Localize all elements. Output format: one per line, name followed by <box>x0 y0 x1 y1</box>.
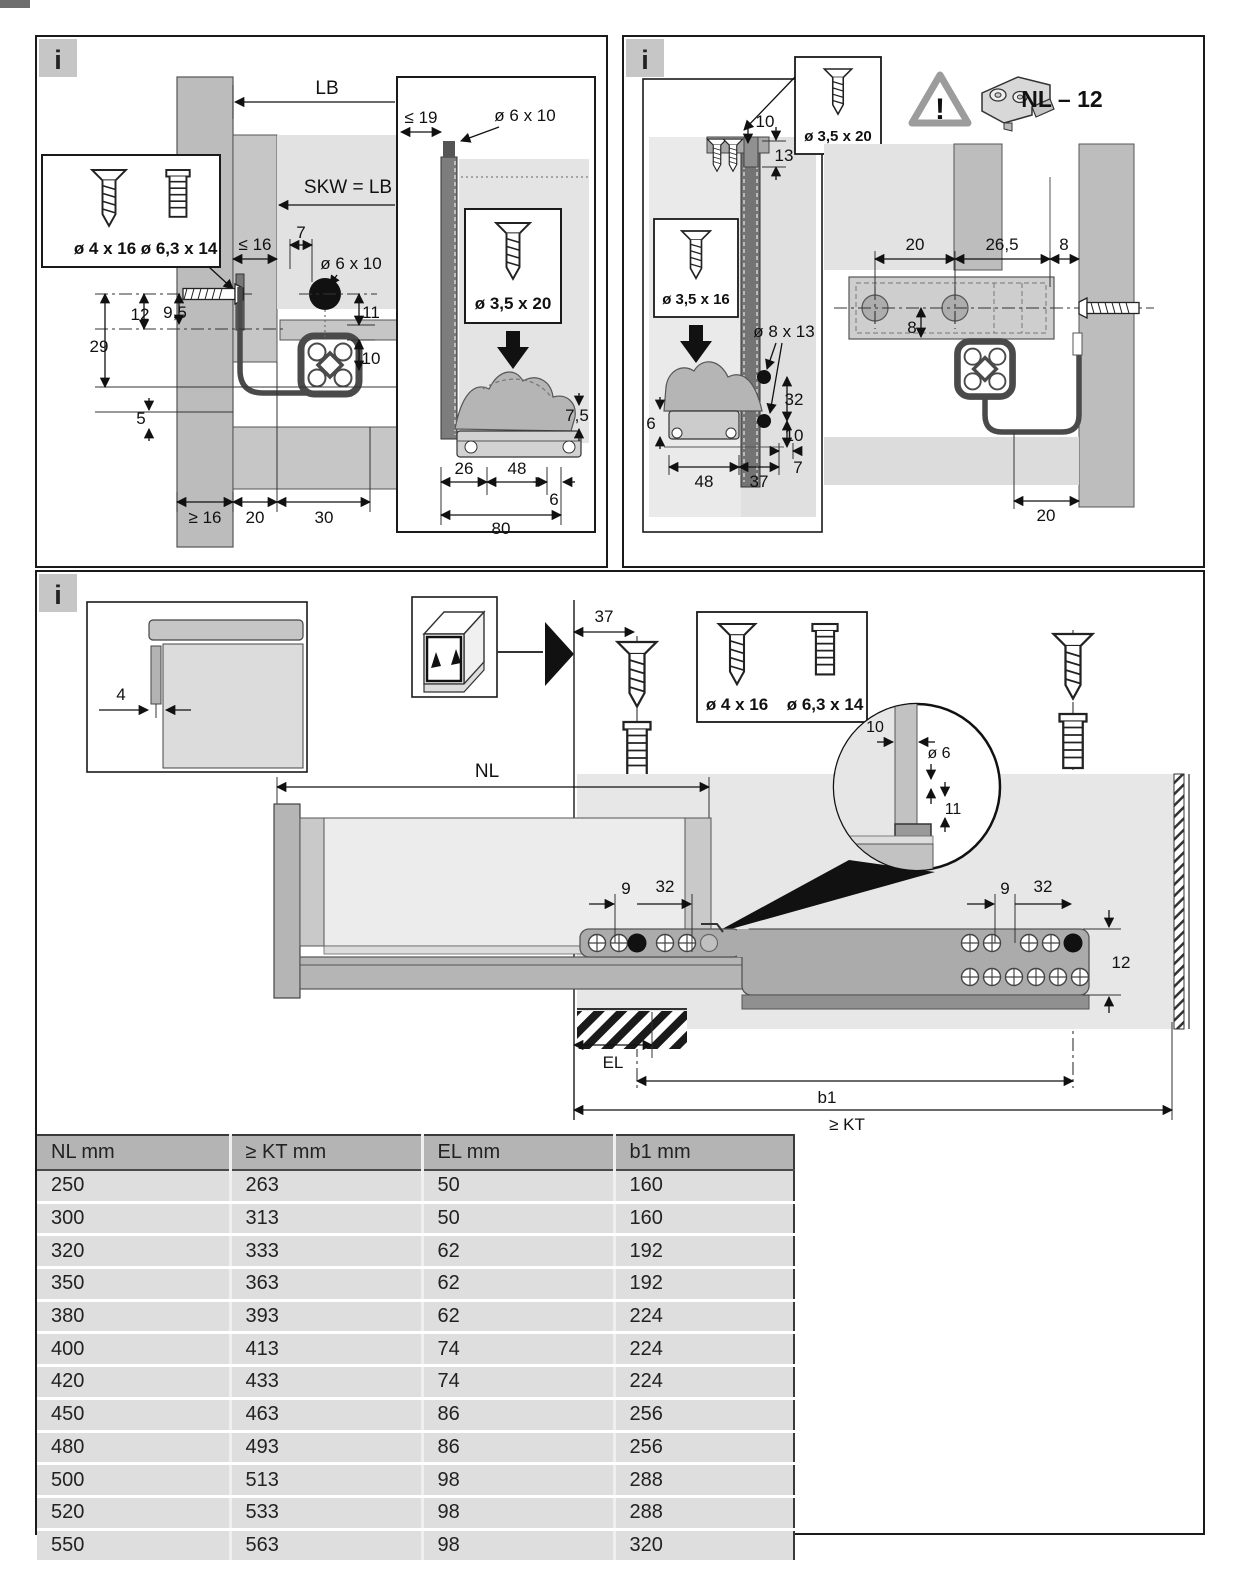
fixing-hole <box>1064 934 1083 953</box>
table-cell: 50 <box>422 1170 614 1202</box>
front-detail-subpanel: ≤ 19 ø 6 x 10 ø 3,5 x 20 7,5 26 48 6 80 <box>397 77 595 538</box>
table-cell: 74 <box>422 1366 614 1399</box>
front-gap-detail-box: 4 <box>87 602 307 772</box>
part-number-label: NL – 12 <box>1021 86 1102 112</box>
table-cell: 98 <box>422 1529 614 1560</box>
top-view-section: 20 26,5 8 8 20 <box>824 144 1154 525</box>
screw-top-label: ø 3,5 x 20 <box>804 128 872 145</box>
screw2-label: ø 6,3 x 14 <box>141 239 218 258</box>
table-row: 35036362192 <box>37 1268 794 1301</box>
dim-32-right: 32 <box>1034 877 1053 896</box>
mag-dim-dia6: ø 6 <box>927 745 950 762</box>
mag-dim-10: 10 <box>866 719 884 736</box>
table-row: 42043374224 <box>37 1366 794 1399</box>
table-header-cell: NL mm <box>37 1135 230 1170</box>
spec-table-body: 2502635016030031350160320333621923503636… <box>37 1170 794 1560</box>
screw2-label: ø 6,3 x 14 <box>787 695 864 714</box>
drawer-side-view <box>274 804 745 998</box>
table-cell: 86 <box>422 1398 614 1431</box>
screw-icon <box>1054 634 1093 699</box>
dim-hole: ø 6 x 10 <box>320 254 381 273</box>
pointer-triangle <box>545 622 574 686</box>
back-mounting-drawing: i 10 13 ø 3,5 x 16 ø 8 x 13 32 10 <box>624 37 1203 566</box>
dim-hole: ø 8 x 13 <box>753 322 814 341</box>
dim-11: 11 <box>362 303 380 322</box>
table-cell: 300 <box>37 1202 230 1235</box>
table-header-cell: b1 mm <box>614 1135 794 1170</box>
rail-cross-section <box>957 341 1012 396</box>
plug-hole <box>757 370 771 384</box>
dim-8: 8 <box>1059 235 1068 254</box>
table-cell: 393 <box>230 1300 422 1333</box>
dim-8b: 8 <box>907 318 916 337</box>
table-cell: 363 <box>230 1268 422 1301</box>
mag-dim-11: 11 <box>945 801 962 818</box>
dim-32: 32 <box>785 390 804 409</box>
table-cell: 320 <box>37 1235 230 1268</box>
dim-13: 13 <box>775 146 794 165</box>
dim-5: 5 <box>136 409 145 428</box>
table-cell: 263 <box>230 1170 422 1202</box>
dim-el: EL <box>603 1053 624 1072</box>
dim-b1: b1 <box>818 1088 837 1107</box>
table-cell: 98 <box>422 1464 614 1497</box>
table-header-row: NL mm≥ KT mmEL mmb1 mm <box>37 1135 794 1170</box>
dim-9-right: 9 <box>1000 879 1009 898</box>
table-cell: 563 <box>230 1529 422 1560</box>
dim-lb: LB <box>315 78 338 99</box>
table-row: 55056398320 <box>37 1529 794 1560</box>
screw-spec-box: ø 4 x 16 ø 6,3 x 14 <box>42 155 220 267</box>
info-label: i <box>641 45 649 75</box>
dim-12: 12 <box>1112 953 1131 972</box>
table-cell: 333 <box>230 1235 422 1268</box>
table-row: 52053398288 <box>37 1496 794 1529</box>
dim-4: 4 <box>116 685 125 704</box>
table-cell: 74 <box>422 1333 614 1366</box>
cabinet-icon <box>424 612 484 692</box>
dim-80: 80 <box>492 519 511 538</box>
dim-26: 26 <box>455 459 474 478</box>
screw-mid-label: ø 3,5 x 16 <box>662 291 730 308</box>
euro-screw-icon <box>812 624 837 674</box>
table-cell: 256 <box>614 1431 794 1464</box>
dim-7: 7 <box>296 223 305 242</box>
drawer-side-section <box>277 135 397 309</box>
table-cell: 160 <box>614 1170 794 1202</box>
floor-hatch <box>577 1011 687 1049</box>
dim-20: 20 <box>906 235 925 254</box>
dim-9-5: 9,5 <box>163 303 187 322</box>
table-cell: 62 <box>422 1300 614 1333</box>
info-label: i <box>54 45 62 75</box>
table-cell: 98 <box>422 1496 614 1529</box>
dim-6: 6 <box>549 490 558 509</box>
table-header-cell: ≥ KT mm <box>230 1135 422 1170</box>
detail-screw-label: ø 3,5 x 20 <box>475 294 552 313</box>
table-cell: 288 <box>614 1496 794 1529</box>
table-cell: 62 <box>422 1268 614 1301</box>
table-row: 32033362192 <box>37 1235 794 1268</box>
dim-12: 12 <box>131 305 150 324</box>
warning-exclamation: ! <box>935 93 945 126</box>
table-cell: 550 <box>37 1529 230 1560</box>
cabinet-icon-box <box>412 597 497 697</box>
page-corner-mark <box>0 0 30 8</box>
dim-le16: ≤ 16 <box>239 235 272 254</box>
fixing-hole <box>628 934 647 953</box>
table-row: 30031350160 <box>37 1202 794 1235</box>
drawer-front <box>274 804 300 998</box>
dimension-table: NL mm≥ KT mmEL mmb1 mm 25026350160300313… <box>37 1134 794 1537</box>
panel-length-planning: i 4 37 ø 4 x <box>35 570 1205 1535</box>
dim-kt: ≥ KT <box>829 1115 865 1134</box>
table-cell: 50 <box>422 1202 614 1235</box>
dim-le19: ≤ 19 <box>405 108 438 127</box>
table-cell: 192 <box>614 1268 794 1301</box>
table-cell: 250 <box>37 1170 230 1202</box>
dim-hole2: ø 6 x 10 <box>494 106 555 125</box>
table-row: 38039362224 <box>37 1300 794 1333</box>
dim-48: 48 <box>695 472 714 491</box>
euro-screw-icon <box>624 722 651 776</box>
table-cell: 256 <box>614 1398 794 1431</box>
table-cell: 420 <box>37 1366 230 1399</box>
table-cell: 433 <box>230 1366 422 1399</box>
dim-10: 10 <box>362 349 381 368</box>
table-cell: 160 <box>614 1202 794 1235</box>
table-row: 25026350160 <box>37 1170 794 1202</box>
screw-icon <box>618 642 657 707</box>
dim-48: 48 <box>508 459 527 478</box>
table-cell: 380 <box>37 1300 230 1333</box>
back-wall <box>1174 774 1184 1029</box>
table-cell: 320 <box>614 1529 794 1560</box>
dim-30: 30 <box>315 508 334 527</box>
dim-26-5: 26,5 <box>985 235 1018 254</box>
dim-10b: 10 <box>785 426 804 445</box>
table-row: 48049386256 <box>37 1431 794 1464</box>
table-row: 50051398288 <box>37 1464 794 1497</box>
cabinet-bottom-section <box>233 427 397 489</box>
hole-plug <box>443 141 455 157</box>
dim-ge16: ≥ 16 <box>189 508 222 527</box>
panel-back-mounting: i 10 13 ø 3,5 x 16 ø 8 x 13 32 10 <box>622 35 1205 568</box>
side-mounting-drawing: i LB SKW = LB - 40 ø 4 x 16 ø 6,3 x 14 ø… <box>37 37 606 566</box>
table-cell: 480 <box>37 1431 230 1464</box>
table-cell: 224 <box>614 1300 794 1333</box>
table-header-cell: EL mm <box>422 1135 614 1170</box>
dim-7-5: 7,5 <box>565 406 589 425</box>
table-cell: 493 <box>230 1431 422 1464</box>
plug-hole <box>757 414 771 428</box>
euro-screw-icon <box>1060 714 1087 768</box>
dim-37: 37 <box>595 607 614 626</box>
table-cell: 413 <box>230 1333 422 1366</box>
dim-37: 37 <box>750 472 769 491</box>
dim-nl: NL <box>475 761 499 782</box>
table-cell: 500 <box>37 1464 230 1497</box>
table-cell: 520 <box>37 1496 230 1529</box>
table-cell: 533 <box>230 1496 422 1529</box>
info-label: i <box>54 580 62 610</box>
dim-9-left: 9 <box>621 879 630 898</box>
dim-20b: 20 <box>1037 506 1056 525</box>
dim-29: 29 <box>90 337 109 356</box>
table-cell: 224 <box>614 1333 794 1366</box>
dim-32-left: 32 <box>656 877 675 896</box>
table-cell: 463 <box>230 1398 422 1431</box>
drawer-bottom-rail <box>300 957 745 989</box>
cabinet-wall <box>1079 144 1134 507</box>
table-cell: 450 <box>37 1398 230 1431</box>
table-cell: 224 <box>614 1366 794 1399</box>
dim-20: 20 <box>246 508 265 527</box>
screw1-label: ø 4 x 16 <box>74 239 136 258</box>
screw1-label: ø 4 x 16 <box>706 695 768 714</box>
table-cell: 288 <box>614 1464 794 1497</box>
drawer-side <box>324 818 685 946</box>
dim-6: 6 <box>646 414 655 433</box>
table-cell: 400 <box>37 1333 230 1366</box>
table-cell: 192 <box>614 1235 794 1268</box>
table-cell: 350 <box>37 1268 230 1301</box>
table-row: 45046386256 <box>37 1398 794 1431</box>
dim-7: 7 <box>793 458 802 477</box>
table-cell: 313 <box>230 1202 422 1235</box>
screw-spec-box: ø 4 x 16 ø 6,3 x 14 <box>697 612 867 722</box>
rail-cross-section <box>301 336 359 394</box>
table-cell: 513 <box>230 1464 422 1497</box>
panel-side-mounting: i LB SKW = LB - 40 ø 4 x 16 ø 6,3 x 14 ø… <box>35 35 608 568</box>
table-cell: 62 <box>422 1235 614 1268</box>
table-row: 40041374224 <box>37 1333 794 1366</box>
euro-screw-icon <box>166 170 189 217</box>
table-cell: 86 <box>422 1431 614 1464</box>
